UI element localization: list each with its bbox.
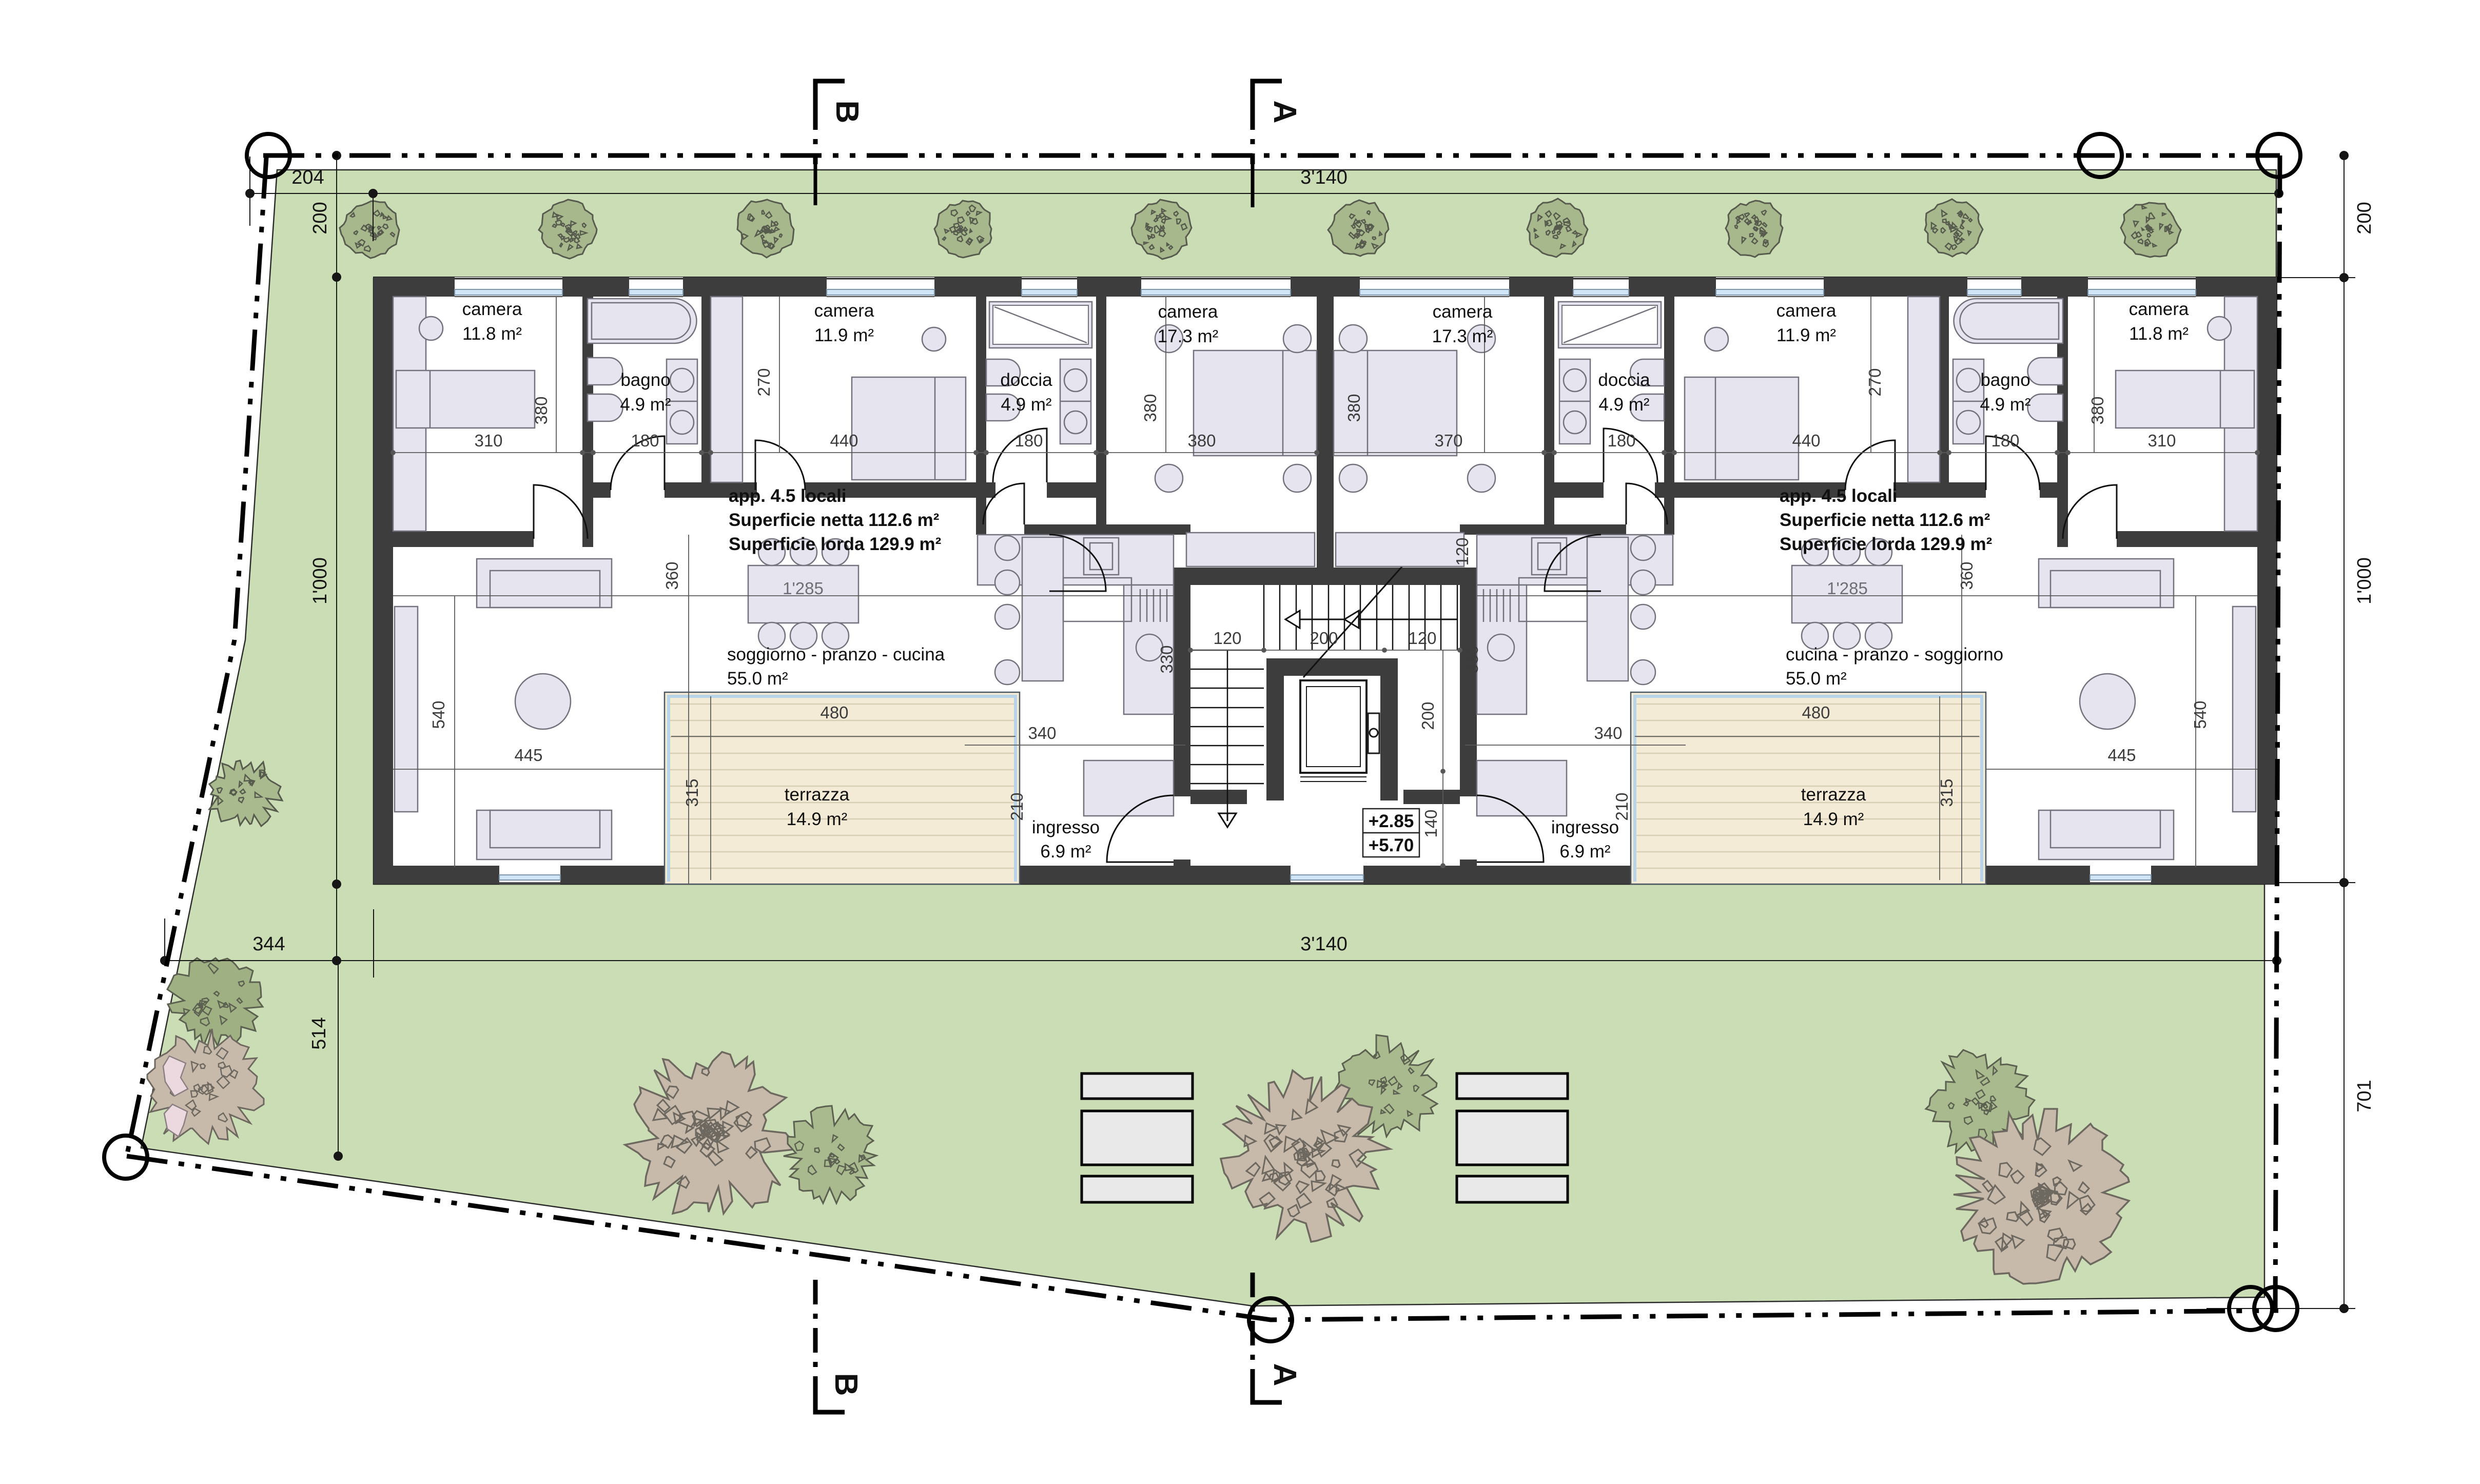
- svg-text:+5.70: +5.70: [1369, 835, 1414, 855]
- svg-text:doccia: doccia: [1598, 370, 1650, 390]
- svg-text:380: 380: [1141, 394, 1160, 422]
- svg-text:540: 540: [429, 700, 448, 729]
- svg-text:120: 120: [1213, 629, 1241, 648]
- svg-text:11.9 m²: 11.9 m²: [1776, 325, 1836, 345]
- svg-text:55.0 m²: 55.0 m²: [727, 669, 788, 689]
- svg-text:200: 200: [1418, 701, 1437, 730]
- svg-text:480: 480: [1802, 703, 1830, 722]
- svg-text:1'000: 1'000: [309, 557, 331, 604]
- svg-text:480: 480: [820, 703, 848, 722]
- svg-text:55.0 m²: 55.0 m²: [1786, 669, 1847, 689]
- svg-text:210: 210: [1007, 792, 1026, 821]
- svg-text:camera: camera: [1776, 301, 1837, 321]
- svg-text:B: B: [828, 1373, 864, 1396]
- svg-text:camera: camera: [1433, 302, 1493, 322]
- svg-text:440: 440: [1792, 431, 1820, 450]
- svg-text:445: 445: [514, 746, 542, 765]
- svg-text:11.8 m²: 11.8 m²: [2129, 324, 2189, 344]
- svg-text:ingresso: ingresso: [1551, 817, 1619, 837]
- svg-text:140: 140: [1421, 809, 1440, 837]
- svg-text:380: 380: [1187, 431, 1216, 450]
- svg-text:310: 310: [474, 431, 502, 450]
- svg-text:app. 4.5 locali: app. 4.5 locali: [1780, 486, 1898, 506]
- svg-text:380: 380: [1344, 394, 1363, 422]
- svg-text:4.9 m²: 4.9 m²: [1001, 395, 1051, 415]
- svg-text:210: 210: [1612, 792, 1631, 821]
- svg-text:340: 340: [1594, 724, 1622, 743]
- svg-text:11.8 m²: 11.8 m²: [462, 324, 522, 344]
- svg-text:200: 200: [2354, 202, 2375, 234]
- svg-text:app. 4.5 locali: app. 4.5 locali: [729, 486, 847, 506]
- svg-text:3'140: 3'140: [1300, 933, 1348, 955]
- svg-text:Superficie lorda 129.9 m²: Superficie lorda 129.9 m²: [729, 534, 941, 554]
- svg-text:330: 330: [1462, 645, 1481, 673]
- svg-text:270: 270: [754, 368, 773, 396]
- svg-text:4.9 m²: 4.9 m²: [1598, 395, 1649, 415]
- svg-text:Superficie lorda 129.9 m²: Superficie lorda 129.9 m²: [1780, 534, 1992, 554]
- svg-text:120: 120: [1453, 537, 1472, 565]
- svg-text:180: 180: [1607, 431, 1635, 450]
- svg-text:Superficie netta 112.6 m²: Superficie netta 112.6 m²: [1780, 510, 1990, 530]
- svg-text:200: 200: [309, 202, 331, 234]
- svg-text:1'285: 1'285: [1827, 579, 1868, 598]
- svg-text:1'285: 1'285: [783, 579, 824, 598]
- svg-text:180: 180: [1991, 431, 2019, 450]
- svg-text:270: 270: [1865, 368, 1884, 396]
- svg-text:A: A: [1267, 101, 1302, 124]
- svg-text:doccia: doccia: [1000, 370, 1052, 390]
- svg-text:bagno: bagno: [620, 370, 670, 390]
- svg-text:440: 440: [830, 431, 858, 450]
- svg-text:terrazza: terrazza: [1801, 785, 1866, 805]
- svg-text:B: B: [829, 101, 865, 124]
- svg-text:330: 330: [1157, 645, 1176, 673]
- svg-text:310: 310: [2147, 431, 2176, 450]
- svg-text:camera: camera: [462, 299, 522, 319]
- svg-text:terrazza: terrazza: [785, 785, 850, 805]
- svg-text:360: 360: [662, 561, 681, 590]
- svg-text:315: 315: [1937, 778, 1956, 807]
- svg-text:1'000: 1'000: [2354, 557, 2375, 604]
- svg-text:camera: camera: [2129, 299, 2189, 319]
- svg-text:4.9 m²: 4.9 m²: [620, 395, 671, 415]
- svg-text:120: 120: [1408, 629, 1436, 648]
- svg-text:14.9 m²: 14.9 m²: [787, 809, 848, 829]
- svg-text:344: 344: [252, 933, 285, 955]
- svg-text:204: 204: [291, 167, 324, 188]
- svg-text:6.9 m²: 6.9 m²: [1559, 842, 1610, 862]
- svg-text:370: 370: [1434, 431, 1462, 450]
- svg-text:514: 514: [308, 1017, 330, 1049]
- svg-text:4.9 m²: 4.9 m²: [1980, 395, 2030, 415]
- svg-text:+2.85: +2.85: [1369, 811, 1414, 831]
- svg-text:3'140: 3'140: [1300, 167, 1348, 188]
- svg-text:17.3 m²: 17.3 m²: [1432, 326, 1493, 346]
- svg-text:540: 540: [2191, 700, 2210, 729]
- svg-text:14.9 m²: 14.9 m²: [1803, 809, 1864, 829]
- svg-text:11.9 m²: 11.9 m²: [814, 325, 874, 345]
- svg-text:A: A: [1267, 1363, 1302, 1387]
- svg-text:315: 315: [682, 778, 701, 807]
- svg-text:360: 360: [1957, 561, 1976, 590]
- svg-text:cucina - pranzo - soggiorno: cucina - pranzo - soggiorno: [1786, 645, 2003, 665]
- svg-text:ingresso: ingresso: [1032, 817, 1100, 837]
- svg-text:340: 340: [1028, 724, 1056, 743]
- svg-text:Superficie netta 112.6 m²: Superficie netta 112.6 m²: [729, 510, 939, 530]
- svg-text:180: 180: [1014, 431, 1043, 450]
- svg-text:17.3 m²: 17.3 m²: [1158, 326, 1219, 346]
- svg-text:200: 200: [1310, 629, 1338, 648]
- svg-text:6.9 m²: 6.9 m²: [1040, 842, 1091, 862]
- svg-text:bagno: bagno: [1980, 370, 2030, 390]
- svg-text:camera: camera: [1158, 302, 1218, 322]
- svg-text:180: 180: [631, 431, 659, 450]
- svg-text:701: 701: [2354, 1080, 2375, 1112]
- svg-text:380: 380: [2088, 396, 2107, 424]
- svg-text:camera: camera: [814, 301, 874, 321]
- svg-text:soggiorno - pranzo - cucina: soggiorno - pranzo - cucina: [727, 645, 945, 665]
- svg-text:445: 445: [2107, 746, 2136, 765]
- svg-text:380: 380: [532, 396, 551, 424]
